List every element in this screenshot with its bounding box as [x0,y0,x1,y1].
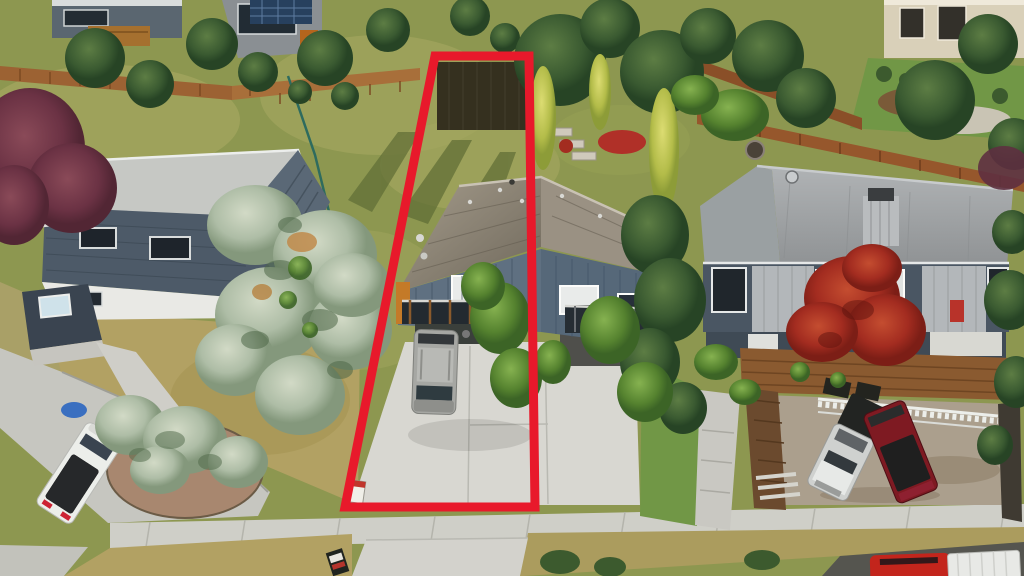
red-door [950,300,964,322]
chimney [863,196,899,246]
round-planter [746,141,764,159]
dark-hedge [437,62,529,130]
silver-suv [412,329,459,414]
left-house-window [80,228,116,248]
aerial-photo [0,0,1024,576]
solar-panels [250,0,312,24]
left-house-window [150,237,190,259]
red-shrub [598,130,646,154]
satellite-dish [786,171,798,183]
right-house-window [712,268,746,312]
driveway-shadow [408,419,532,451]
blue-tarp [61,402,87,418]
red-car [870,553,951,576]
white-trailer [947,550,1020,576]
driveway-apron [352,538,528,576]
dead-orange-patch [287,232,317,252]
skylight [39,294,71,317]
aerial-photo-canvas [0,0,1024,576]
